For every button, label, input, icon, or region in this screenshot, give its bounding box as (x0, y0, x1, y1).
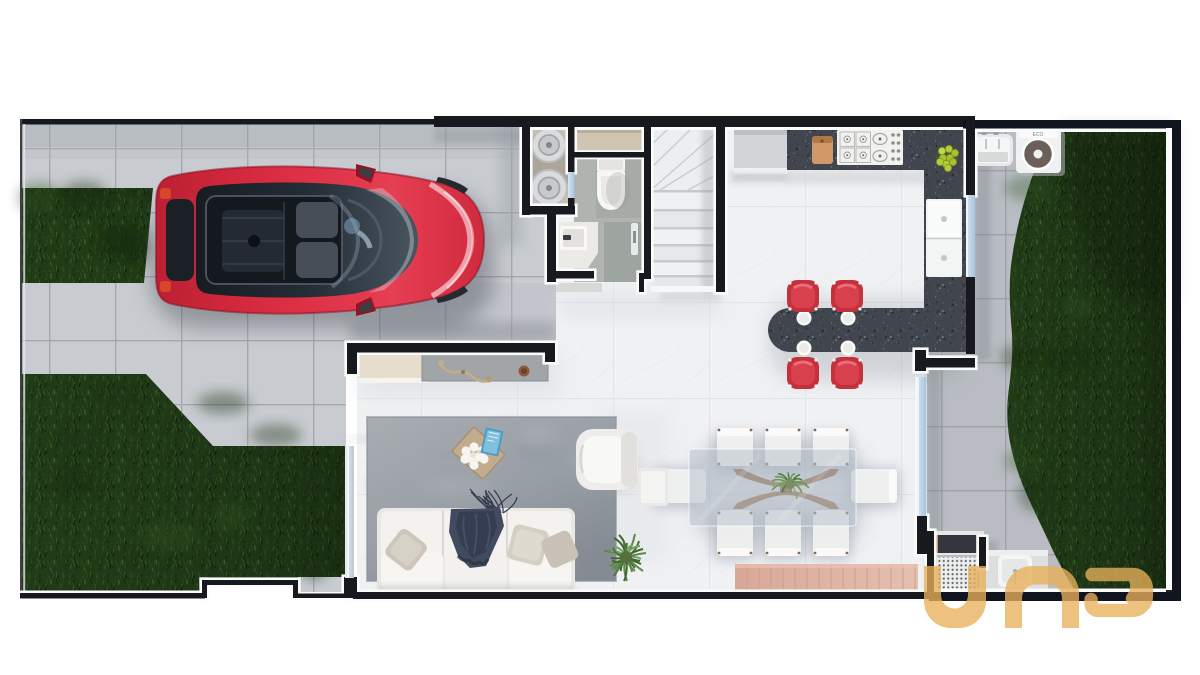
svg-text:ECO: ECO (1033, 132, 1044, 138)
